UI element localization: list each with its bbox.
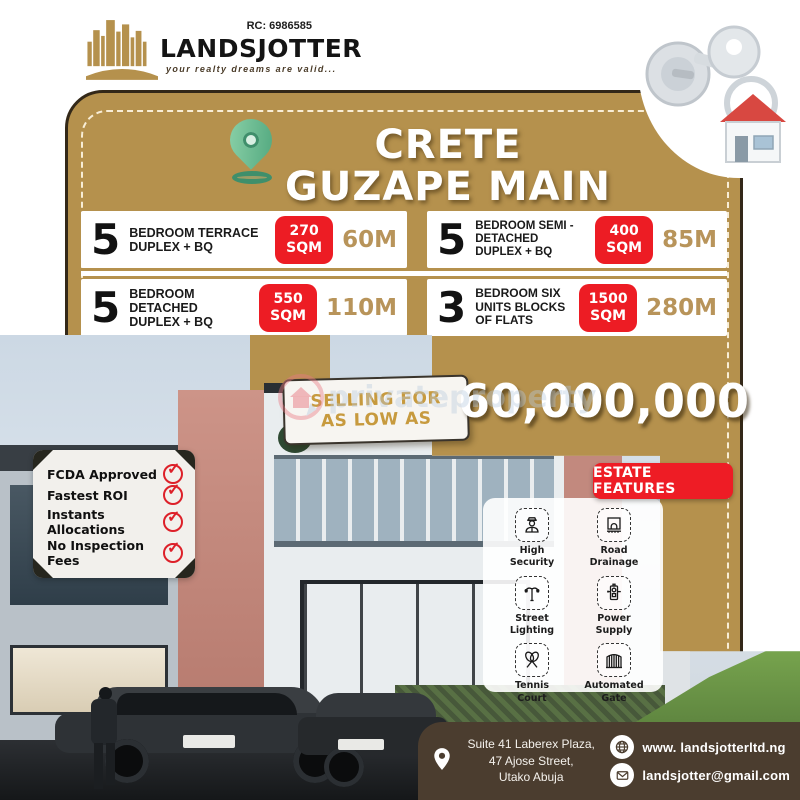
- feature-road-drainage: Road Drainage: [590, 508, 639, 570]
- feature-label: Security: [510, 557, 554, 568]
- feature-label: Street: [515, 613, 549, 624]
- address-line1: Suite 41 Laberex Plaza,: [462, 736, 600, 753]
- address: Suite 41 Laberex Plaza, 47 Ajose Street,…: [462, 736, 600, 786]
- brand-logo-icon: [86, 10, 158, 82]
- feature-street-lighting: Street Lighting: [510, 576, 554, 638]
- listing-detached-duplex: 5 BEDROOM DETACHED DUPLEX + BQ 550 SQM 1…: [81, 279, 407, 336]
- sqm-unit: SQM: [286, 240, 322, 256]
- sqm-value: 550: [273, 291, 302, 307]
- sqm-unit: SQM: [270, 308, 306, 324]
- street-light-icon: [515, 576, 549, 610]
- email-row: landsjotter@gmail.com: [610, 763, 790, 787]
- address-pin-icon: [432, 746, 452, 777]
- website-url: www. landsjotterltd.ng: [642, 740, 785, 755]
- feature-label: Automated: [584, 680, 643, 691]
- listing-description: BEDROOM SEMI - DETACHED DUPLEX + BQ: [475, 220, 586, 259]
- key-house-image: [638, 0, 800, 178]
- feature-label: Road: [600, 545, 627, 556]
- feature-label: Tennis: [515, 680, 549, 691]
- brand-rc-number: RC: 6986585: [200, 20, 312, 32]
- automated-gate-icon: [597, 643, 631, 677]
- feature-label: High: [520, 545, 545, 556]
- benefit-label: No Inspection Fees: [47, 538, 163, 568]
- estate-title-line2: GUZAPE MAIN: [238, 167, 658, 209]
- contact-bar: Suite 41 Laberex Plaza, 47 Ajose Street,…: [418, 722, 800, 800]
- listing-price: 60M: [342, 227, 397, 253]
- brand-name: LANDSJOTTER: [160, 34, 362, 63]
- watermark-text: privateproperty: [328, 380, 596, 415]
- road-drainage-icon: [597, 508, 631, 542]
- benefits-card: FCDA Approved Fastest ROI Instants Alloc…: [33, 450, 195, 578]
- email-address: landsjotter@gmail.com: [642, 768, 790, 783]
- flyer: RC: 6986585 LANDSJOTTER your realty drea…: [0, 0, 800, 800]
- listing-terrace-duplex: 5 BEDROOM TERRACE DUPLEX + BQ 270 SQM 60…: [81, 211, 407, 268]
- feature-label: Power: [597, 613, 630, 624]
- check-icon: [163, 512, 183, 532]
- benefit-label: Instants Allocations: [47, 507, 163, 537]
- listing-sqm-badge: 1500 SQM: [579, 284, 637, 332]
- benefit-label: Fastest ROI: [47, 488, 128, 503]
- email-icon: [610, 763, 634, 787]
- listing-description: BEDROOM TERRACE DUPLEX + BQ: [129, 226, 266, 254]
- benefit-row: No Inspection Fees: [47, 538, 183, 568]
- listing-bedrooms: 5: [91, 219, 120, 261]
- listing-blocks-of-flats: 3 BEDROOM SIX UNITS BLOCKS OF FLATS 1500…: [427, 279, 727, 336]
- feature-label: Drainage: [590, 557, 639, 568]
- feature-label: Lighting: [510, 625, 554, 636]
- feature-tennis-court: Tennis Court: [515, 643, 549, 705]
- sqm-unit: SQM: [606, 240, 642, 256]
- person: [85, 687, 127, 792]
- feature-power-supply: Power Supply: [596, 576, 633, 638]
- benefit-row: FCDA Approved: [47, 464, 183, 484]
- listing-sqm-badge: 270 SQM: [275, 216, 333, 264]
- contact-links: www. landsjotterltd.ng landsjotter@gmail…: [610, 731, 790, 791]
- check-icon: [163, 485, 183, 505]
- listing-sqm-badge: 550 SQM: [259, 284, 317, 332]
- address-line3: Utako Abuja: [462, 769, 600, 786]
- listing-description: BEDROOM DETACHED DUPLEX + BQ: [129, 287, 250, 329]
- globe-icon: [610, 735, 634, 759]
- website-row: www. landsjotterltd.ng: [610, 735, 790, 759]
- benefit-label: FCDA Approved: [47, 467, 157, 482]
- feature-label: Court: [517, 693, 547, 704]
- watermark-logo-icon: [278, 374, 324, 420]
- sqm-value: 400: [609, 223, 638, 239]
- tennis-rackets-icon: [515, 643, 549, 677]
- listing-bedrooms: 5: [91, 287, 120, 329]
- address-line2: 47 Ajose Street,: [462, 753, 600, 770]
- brand-tagline: your realty dreams are valid...: [166, 64, 336, 74]
- listing-separator: [81, 271, 727, 276]
- listing-sqm-badge: 400 SQM: [595, 216, 653, 264]
- watermark: privateproperty: [278, 374, 596, 420]
- estate-title: CRETE GUZAPE MAIN: [238, 125, 658, 208]
- sqm-unit: SQM: [590, 308, 626, 324]
- listing-bedrooms: 3: [437, 287, 466, 329]
- sqm-value: 270: [289, 223, 318, 239]
- listing-price: 85M: [662, 227, 717, 253]
- power-supply-icon: [597, 576, 631, 610]
- benefit-row: Fastest ROI: [47, 485, 183, 505]
- listing-price: 110M: [326, 295, 397, 321]
- benefit-row: Instants Allocations: [47, 507, 183, 537]
- listing-semi-detached-duplex: 5 BEDROOM SEMI - DETACHED DUPLEX + BQ 40…: [427, 211, 727, 268]
- feature-label: Supply: [596, 625, 633, 636]
- check-icon: [163, 543, 183, 563]
- feature-label: Gate: [601, 693, 626, 704]
- listing-bedrooms: 5: [437, 219, 466, 261]
- listing-price: 280M: [646, 295, 717, 321]
- estate-features-heading: ESTATE FEATURES: [593, 463, 733, 499]
- estate-features-panel: High Security Road Drainage: [483, 498, 663, 692]
- estate-title-line1: CRETE: [238, 125, 658, 167]
- sqm-value: 1500: [589, 291, 628, 307]
- security-guard-icon: [515, 508, 549, 542]
- feature-high-security: High Security: [510, 508, 554, 570]
- feature-automated-gate: Automated Gate: [584, 643, 643, 705]
- listing-description: BEDROOM SIX UNITS BLOCKS OF FLATS: [475, 287, 570, 327]
